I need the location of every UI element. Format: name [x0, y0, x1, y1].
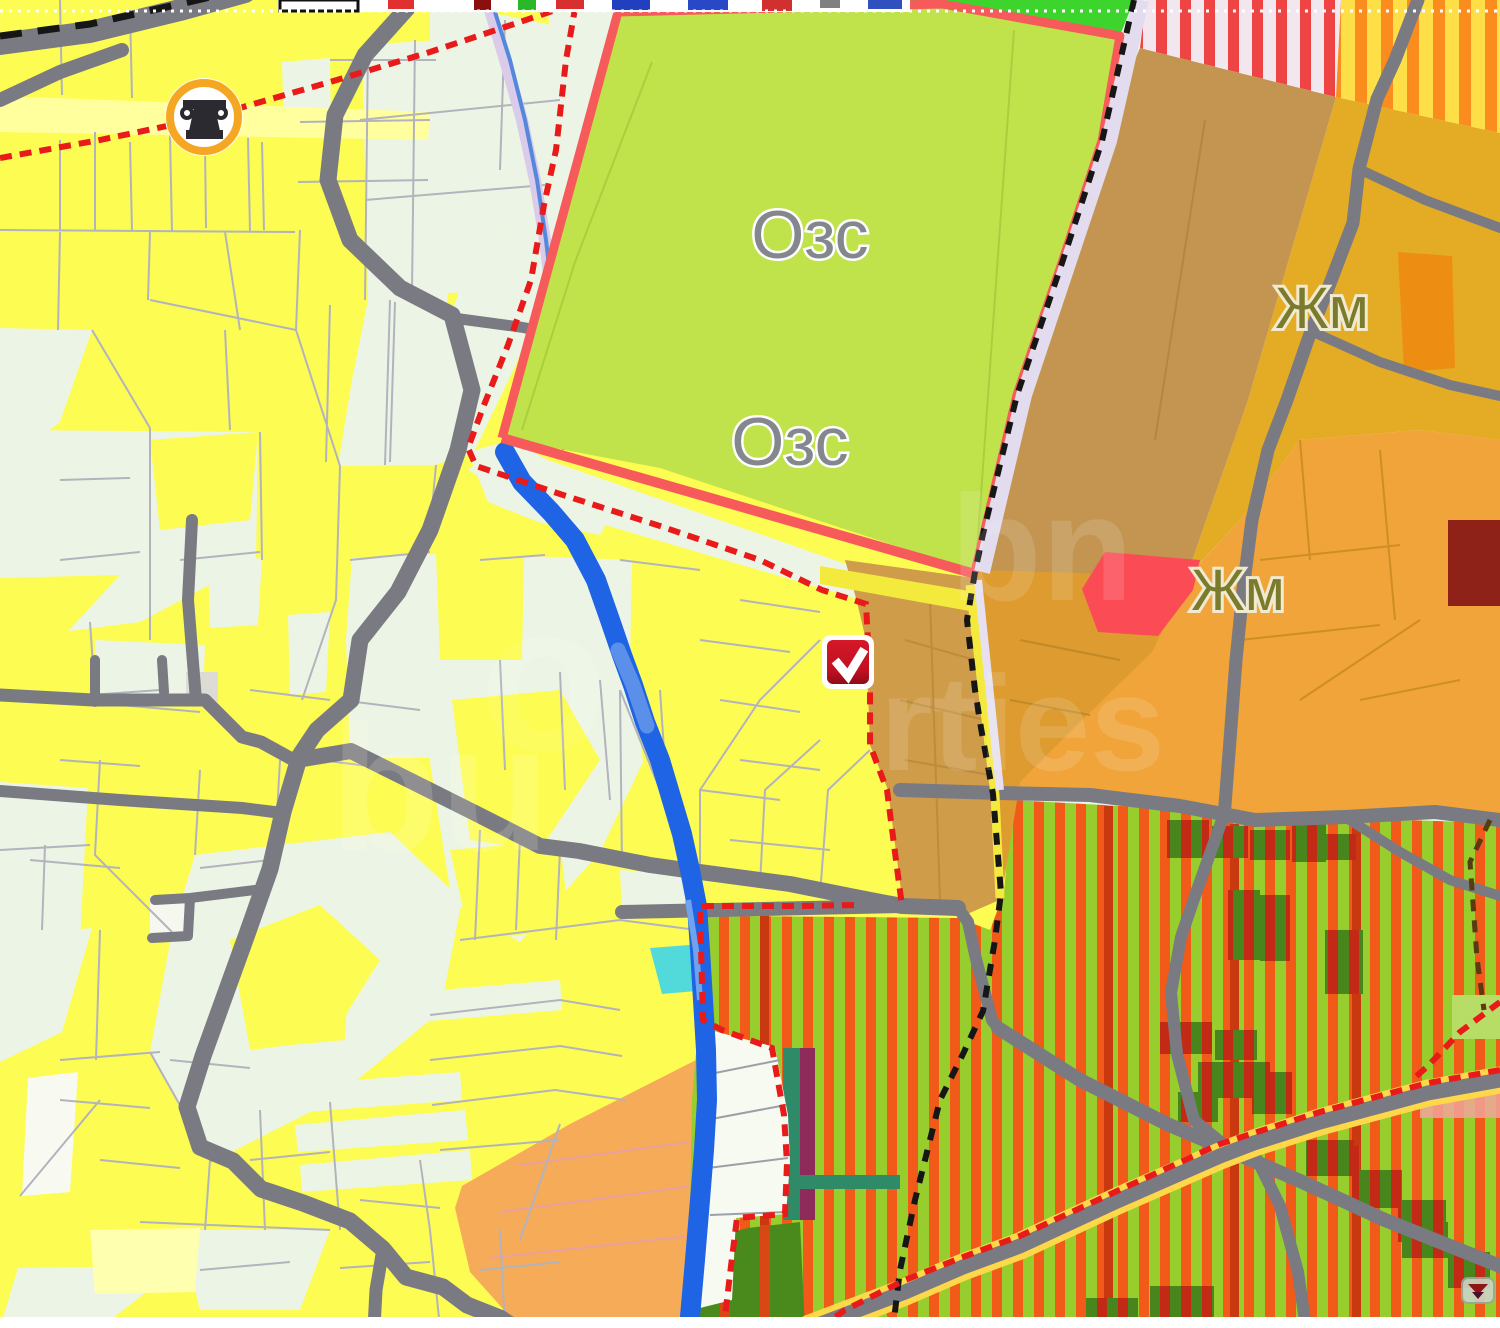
- svg-text:bn: bn: [950, 464, 1133, 632]
- svg-text:Жм: Жм: [1275, 276, 1368, 341]
- svg-text:Озс: Озс: [731, 404, 848, 480]
- svg-text:Озс: Озс: [751, 197, 868, 273]
- svg-text:Жм: Жм: [1191, 558, 1284, 623]
- svg-text:rties: rties: [880, 648, 1165, 799]
- svg-text:bu: bu: [330, 688, 550, 889]
